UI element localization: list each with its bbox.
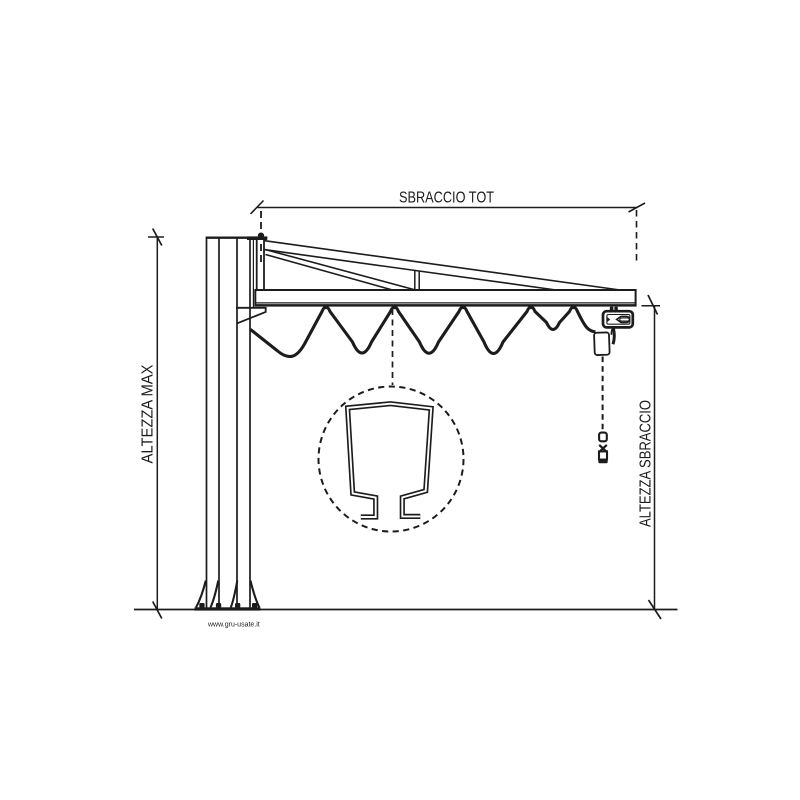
svg-text:www.gru-usate.it: www.gru-usate.it	[207, 622, 260, 629]
svg-text:ALTEZZA MAX: ALTEZZA MAX	[140, 365, 157, 464]
svg-text:SBRACCIO TOT: SBRACCIO TOT	[399, 190, 494, 207]
svg-text:ALTEZZA SBRACCIO: ALTEZZA SBRACCIO	[638, 400, 655, 527]
